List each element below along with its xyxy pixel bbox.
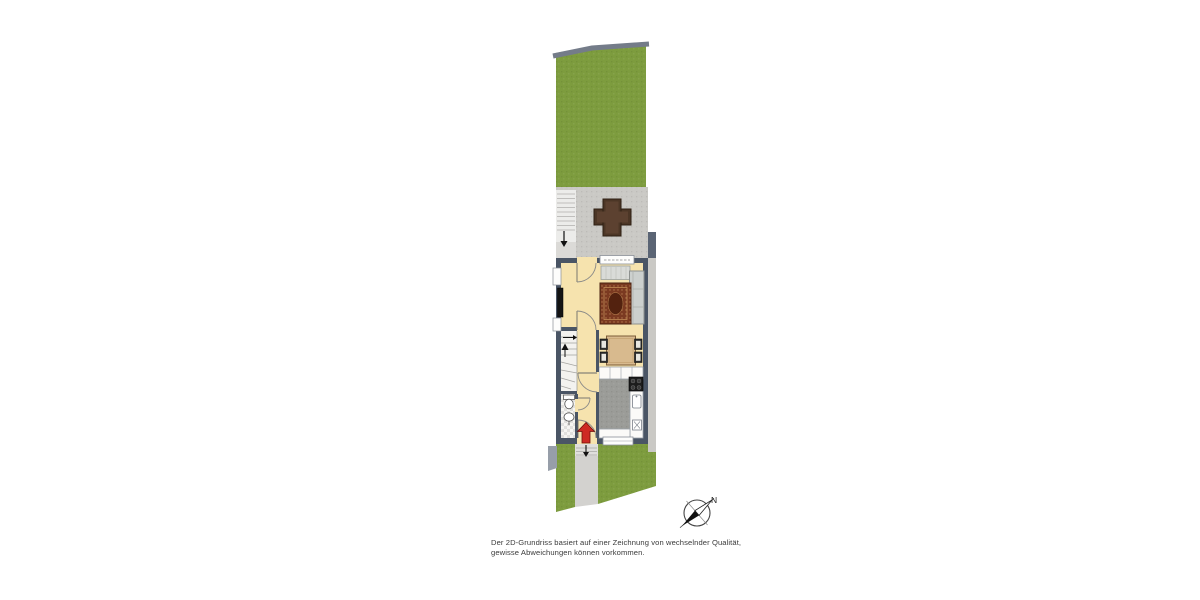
floorplan-page: N Der 2D-Grundriss basiert auf einer Zei… [0,0,1200,600]
interior-wall-stairs-bath [561,391,577,394]
entrance-steps [575,444,598,457]
compass: N [680,495,717,528]
door-gap-terrace [577,257,597,264]
front-garden-texture-l [556,444,575,512]
window-kitchen-bottom [603,437,633,445]
kitchen-floor-texture [599,379,630,429]
garden-wall-stub [548,446,557,471]
disclaimer: Der 2D-Grundriss basiert auf einer Zeich… [491,538,771,557]
window-living-top [600,256,634,265]
appliance-box [633,420,642,430]
window-left-lower [553,318,561,331]
door-gap-kitchen [596,372,599,392]
terrace-side-wall [648,232,656,258]
dining-chair [635,352,643,363]
area-rug [600,283,631,324]
dining-chair [600,339,608,350]
dining-table [607,336,636,365]
side-path-strip [648,258,656,452]
window-left-upper [553,268,561,285]
stove [629,377,643,391]
dining-chair [600,352,608,363]
interior-wall-bath-hall-a [575,394,578,399]
back-garden-texture [556,42,646,187]
disclaimer-line-1: Der 2D-Grundriss basiert auf einer Zeich… [491,538,771,548]
dining-chair [635,339,643,350]
kitchen-area [599,367,643,438]
floorplan-drawing: N [0,0,1200,600]
tv-board [558,288,564,317]
front-garden-texture-r [598,444,656,504]
disclaimer-line-2: gewisse Abweichungen können vorkommen. [491,548,771,558]
sofa [630,271,645,324]
kitchen-sink [633,395,642,408]
sideboard [601,266,630,280]
compass-north-label: N [711,495,717,505]
terrace-steps [556,190,576,258]
toilet [564,395,575,409]
door-gap-bath [575,399,578,412]
